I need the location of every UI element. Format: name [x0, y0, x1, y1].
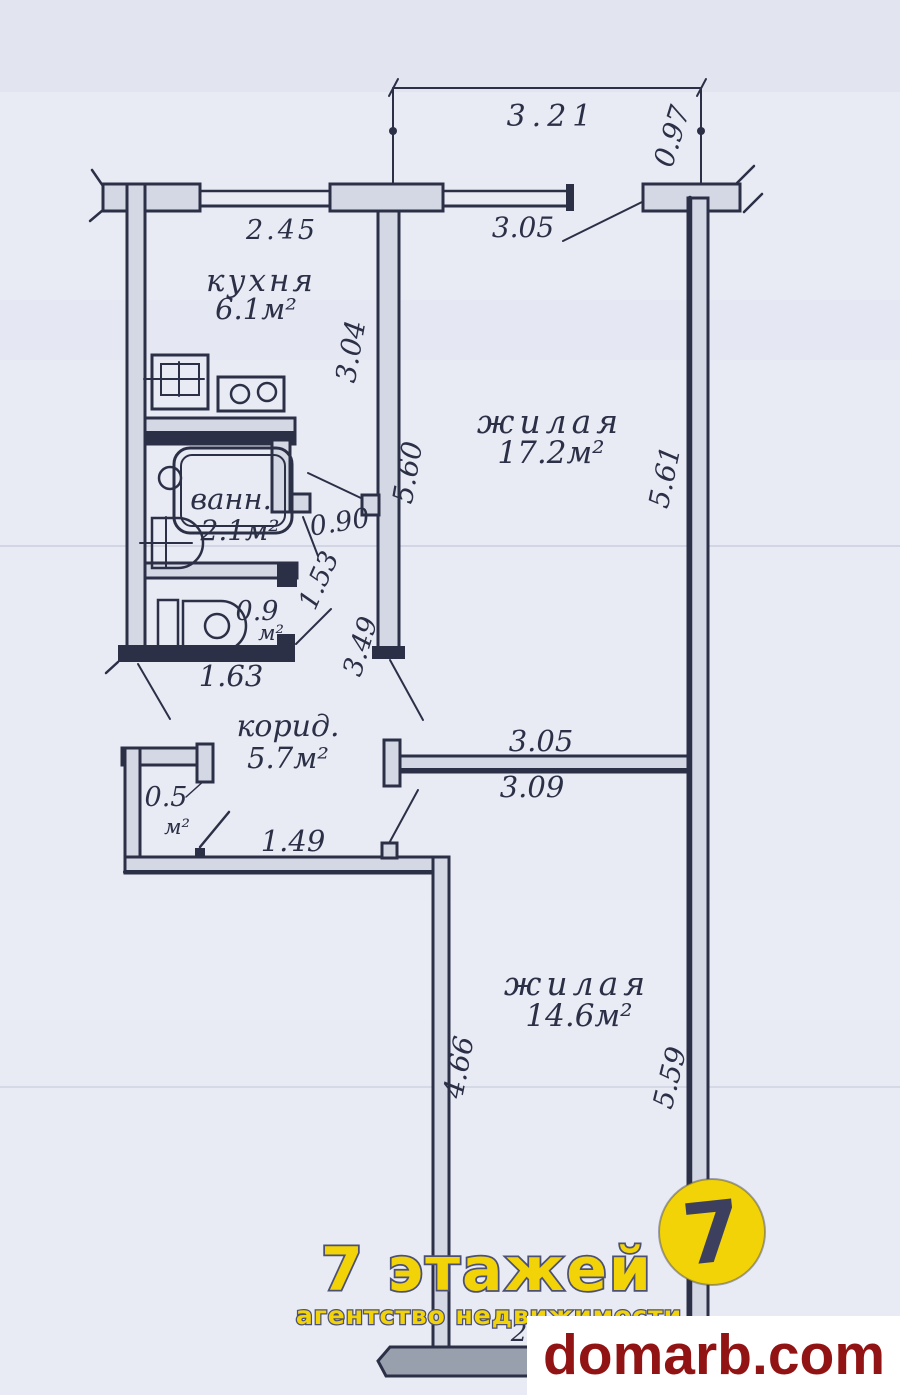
agency-logo: 7 [659, 1179, 765, 1285]
room-area-kitchen: 6.1м² [215, 292, 297, 326]
floor-plan-scan: кухня 6.1м² жилая 17.2м² ванн. 2.1м² 0.9… [0, 0, 900, 1395]
dim-living2-width: 3.09 [500, 770, 565, 804]
wall-left-exterior [127, 184, 145, 652]
room-unit-toilet: м² [258, 621, 284, 645]
room-area-closet: 0.5 [145, 782, 188, 813]
dim-overall-top: 3.21 [507, 99, 598, 134]
dim-living2-top: 3.05 [509, 724, 574, 758]
agency-name: 7 этажей [321, 1235, 653, 1305]
dim-kitchen-width: 2.45 [245, 215, 318, 246]
room-label-corridor: корид. [236, 709, 339, 744]
dim-corridor-opening: 1.49 [261, 824, 326, 858]
website-label: domarb.com [543, 1323, 885, 1387]
room-area-living-main: 17.2м² [497, 435, 604, 471]
website-watermark: domarb.com [527, 1316, 900, 1395]
dim-window-span: 3.05 [492, 211, 554, 244]
dim-toilet-width: 1.63 [199, 659, 264, 693]
room-area-corridor: 5.7м² [247, 741, 329, 775]
room-unit-closet: м² [164, 815, 190, 839]
room-label-bathroom: ванн. [190, 482, 272, 516]
room-area-bathroom: 2.1м² [200, 514, 280, 547]
agency-logo-digit-icon: 7 [678, 1181, 746, 1285]
room-area-living-second: 14.6м² [525, 998, 632, 1034]
